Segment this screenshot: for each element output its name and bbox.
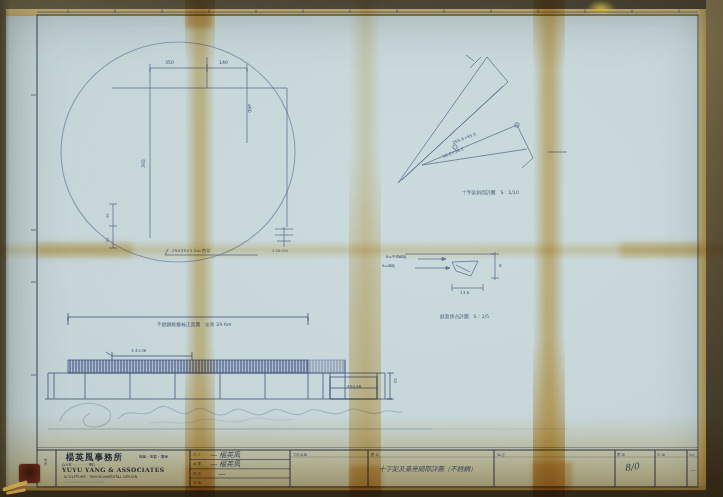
dim-label: 365 (141, 159, 146, 168)
hatched-seat-band (68, 360, 308, 373)
dim-label: 140 (219, 60, 228, 65)
remarks-header: 備 註 (497, 453, 505, 456)
dim-label: 8 (499, 263, 502, 267)
dim-label: 40 (393, 378, 397, 383)
drawing-linework (0, 0, 723, 497)
company-name-en: YUYU YANG & ASSOCIATES (62, 467, 164, 473)
project-header: 工程名稱 (293, 453, 307, 456)
signoff-label: 日 期 (193, 481, 201, 484)
elevation-note: 不銹鋼板條椅正面圖 全長 29.6m (157, 322, 232, 327)
sheet-mark: — (690, 467, 696, 473)
company-tagline: 雕塑・景觀・環境 (139, 455, 168, 459)
signoff-label: 設 計 (193, 453, 201, 456)
sheet-border-frame (31, 10, 698, 488)
title-header: 圖 名 (371, 453, 379, 456)
angular-detail-drawing (398, 55, 567, 183)
dim-label: ⌀60 (247, 104, 252, 113)
circle-plan-drawing (61, 42, 295, 262)
dim-label: 13.6 (460, 290, 469, 294)
dim-label: 40×38 (347, 384, 361, 388)
signoff-label: 繪 圖 (193, 462, 201, 465)
pencil-scribbles (48, 403, 568, 429)
material-label: 9㎜鋼板 (382, 264, 395, 268)
joint-detail-drawing (405, 252, 499, 291)
plan-circle-outline (61, 42, 295, 262)
company-address-en: ········································… (64, 480, 104, 483)
dwg-no-header: 圖 號 (617, 453, 625, 456)
drawing-title: 十字架及臺座細部詳圖（不銹鋼） (379, 466, 477, 473)
signoff-signature: — 楊英風 (210, 461, 240, 468)
leader-note: 25×25×1.2㎜ 角管 (172, 248, 210, 252)
column-section-detail (275, 227, 293, 247)
detail-caption: 十字架斜面詳圖 S：1/10 (462, 190, 519, 195)
punch-hole (19, 464, 40, 483)
date-header: 日 期 (657, 453, 665, 456)
company-subtitle-en: SCULPTURE · ENVIRONMENTAL DESIGN (64, 475, 138, 478)
dim-label: 350 (165, 60, 174, 65)
signoff-signature: — 楊英風 (210, 452, 240, 459)
side-tab-label: 第 頁 (44, 456, 47, 459)
dim-label: 45 (106, 213, 110, 218)
sheet-header: 張次 (689, 453, 695, 456)
dim-label: 3.4×36 (131, 348, 147, 352)
material-label: 6㎜不銹鋼板 (386, 255, 406, 259)
column-note: 2-50×50 (272, 249, 288, 253)
signoff-label: 校 核 (193, 472, 201, 475)
detail-caption: 斜面接合詳圖 S：1/5 (440, 314, 489, 319)
dim-label: 95 (106, 237, 110, 242)
photo-edge-left-shadow (0, 0, 10, 497)
company-name-cn: 楊英風事務所 (66, 453, 123, 462)
margin-tick-marks (68, 10, 679, 14)
blueprint-photo: 350 140 ⌀60 365 45 95 25×25×1.2㎜ 角管 2-50… (0, 0, 723, 497)
signoff-signature: — (218, 471, 225, 478)
left-margin-tick-marks (31, 95, 36, 375)
